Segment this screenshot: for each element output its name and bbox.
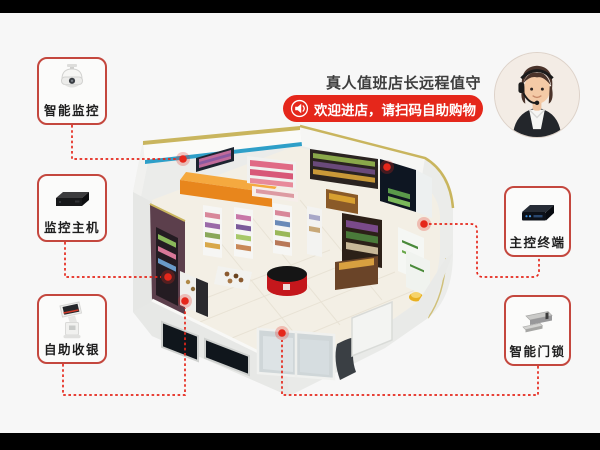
top-letterbox-bar [0, 0, 600, 13]
label-box-monitor-host: 监控主机 [37, 174, 107, 242]
label-text-smart-door-lock: 智能门锁 [509, 345, 565, 359]
poster-canvas: 智能监控 监控主机 自助收银 [0, 0, 600, 450]
entrance-doors [258, 329, 334, 379]
marker-checkout [178, 294, 192, 308]
store-manager-illustration [495, 53, 579, 137]
label-box-main-terminal: 主控终端 [504, 186, 571, 257]
control-terminal-icon [506, 188, 569, 236]
label-text-main-terminal: 主控终端 [509, 236, 565, 250]
left-exterior-wall [133, 192, 152, 312]
label-text-self-checkout: 自助收银 [44, 343, 100, 357]
speaker-icon [290, 99, 309, 118]
label-text-smart-monitoring: 智能监控 [44, 104, 100, 118]
label-box-self-checkout: 自助收银 [37, 294, 107, 364]
freezer-tubs [346, 220, 378, 255]
dvr-host-icon [39, 176, 105, 221]
fridge-end-panel [416, 170, 432, 218]
marker-camera-left [176, 152, 190, 166]
bottom-letterbox-bar [0, 433, 600, 450]
pink-shelf-items [250, 160, 293, 188]
red-cylinder-display [267, 266, 307, 296]
welcome-banner: 欢迎进店，请扫码自助购物 [283, 95, 483, 122]
marker-host [161, 270, 175, 284]
welcome-banner-text: 欢迎进店，请扫码自助购物 [314, 99, 476, 119]
marker-terminal [417, 217, 431, 231]
checkout-kiosk-icon [39, 296, 105, 343]
label-text-monitor-host: 监控主机 [44, 221, 100, 235]
store-manager-photo [494, 52, 580, 138]
label-box-smart-monitoring: 智能监控 [37, 57, 107, 125]
marker-door [275, 326, 289, 340]
dome-camera-icon [39, 59, 105, 104]
marker-camera-right [380, 160, 394, 174]
remote-duty-caption: 真人值班店长远程值守 [326, 72, 481, 93]
magnetic-lock-icon [506, 297, 569, 345]
label-box-smart-door-lock: 智能门锁 [504, 295, 571, 366]
